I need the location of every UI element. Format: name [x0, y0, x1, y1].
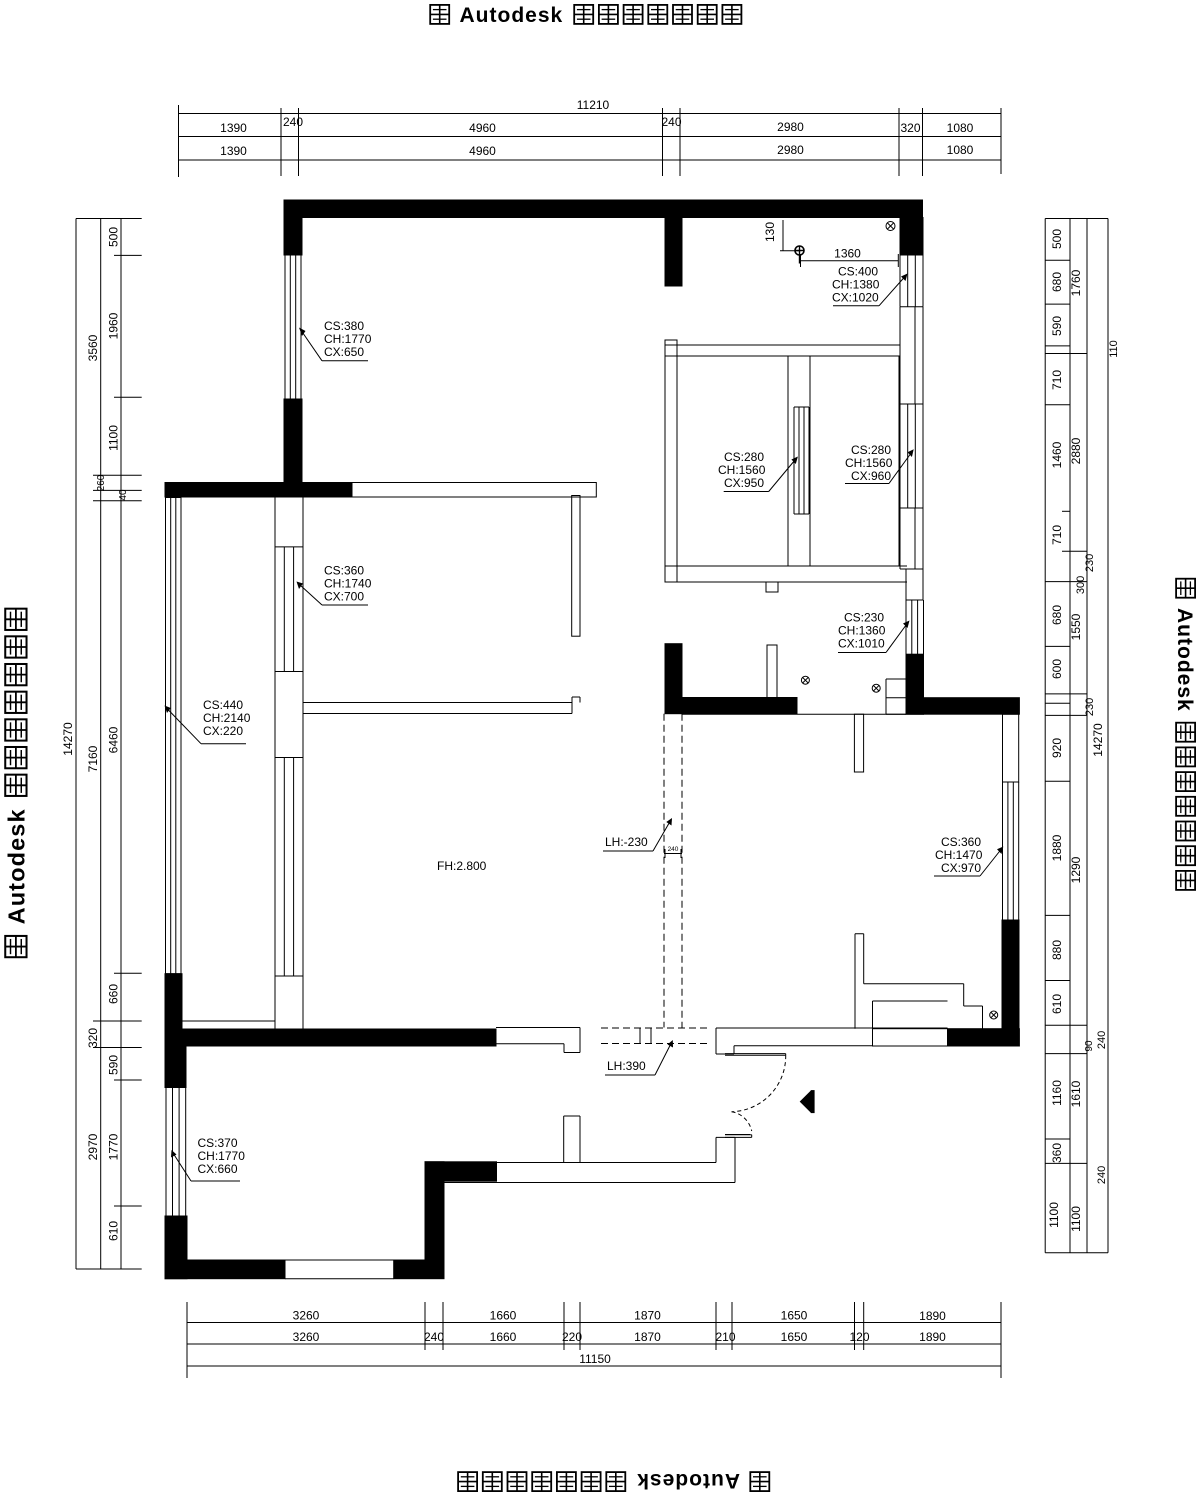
svg-text:CS:370: CS:370 — [198, 1136, 238, 1150]
svg-text:360: 360 — [1050, 1143, 1064, 1163]
svg-text:CH:1770: CH:1770 — [198, 1149, 246, 1163]
svg-text:590: 590 — [1050, 316, 1064, 336]
svg-text:2980: 2980 — [777, 143, 804, 157]
svg-text:CS:360: CS:360 — [324, 564, 364, 578]
svg-text:CS:360: CS:360 — [941, 835, 981, 849]
svg-text:1360: 1360 — [834, 247, 861, 261]
svg-text:240: 240 — [661, 115, 681, 129]
svg-text:1610: 1610 — [1069, 1080, 1083, 1107]
svg-text:CS:400: CS:400 — [838, 265, 878, 279]
svg-text:CH:1560: CH:1560 — [845, 456, 893, 470]
svg-text:680: 680 — [1050, 605, 1064, 625]
svg-text:1890: 1890 — [919, 1309, 946, 1323]
svg-text:1880: 1880 — [1050, 834, 1064, 861]
svg-text:CH:2140: CH:2140 — [203, 711, 251, 725]
svg-text:240: 240 — [283, 115, 303, 129]
svg-text:CS:280: CS:280 — [851, 443, 891, 457]
svg-text:CS:230: CS:230 — [844, 611, 884, 625]
svg-text:6460: 6460 — [107, 726, 121, 753]
svg-text:1660: 1660 — [490, 1309, 517, 1323]
svg-text:110: 110 — [1108, 340, 1120, 358]
svg-text:1080: 1080 — [947, 143, 974, 157]
svg-text:610: 610 — [107, 1221, 121, 1241]
svg-text:220: 220 — [562, 1330, 582, 1344]
svg-text:CX:660: CX:660 — [198, 1162, 238, 1176]
svg-text:1100: 1100 — [1047, 1202, 1061, 1228]
svg-text:1650: 1650 — [781, 1309, 808, 1323]
svg-text:3560: 3560 — [86, 334, 100, 361]
svg-text:14270: 14270 — [61, 722, 75, 756]
svg-text:320: 320 — [86, 1028, 100, 1048]
svg-text:1870: 1870 — [634, 1309, 661, 1323]
svg-text:130: 130 — [763, 222, 777, 242]
svg-text:LH:390: LH:390 — [607, 1059, 646, 1073]
svg-text:710: 710 — [1050, 370, 1064, 390]
svg-text:1080: 1080 — [947, 121, 974, 135]
svg-text:CH:1740: CH:1740 — [324, 577, 372, 591]
svg-text:FH:2.800: FH:2.800 — [437, 859, 487, 873]
svg-text:1390: 1390 — [220, 144, 247, 158]
svg-text:4960: 4960 — [469, 144, 496, 158]
svg-text:CS:380: CS:380 — [324, 319, 364, 333]
svg-text:CX:650: CX:650 — [324, 345, 364, 359]
svg-text:11210: 11210 — [577, 98, 610, 112]
svg-text:1550: 1550 — [1069, 613, 1083, 640]
svg-text:230: 230 — [1084, 698, 1096, 716]
svg-text:4960: 4960 — [469, 121, 496, 135]
svg-text:660: 660 — [107, 984, 121, 1004]
svg-text:11150: 11150 — [579, 1352, 611, 1366]
svg-text:CX:1020: CX:1020 — [832, 291, 879, 305]
svg-text:40: 40 — [118, 489, 129, 501]
svg-text:CH:1560: CH:1560 — [718, 463, 766, 477]
svg-text:CH:1360: CH:1360 — [838, 624, 886, 638]
svg-text:CX:950: CX:950 — [724, 476, 764, 490]
svg-text:CX:960: CX:960 — [851, 469, 891, 483]
svg-text:710: 710 — [1050, 525, 1064, 545]
svg-text:LH:-230: LH:-230 — [605, 835, 648, 849]
svg-text:610: 610 — [1050, 994, 1064, 1014]
svg-text:1650: 1650 — [781, 1330, 808, 1344]
svg-text:1160: 1160 — [1050, 1080, 1064, 1106]
svg-text:2980: 2980 — [777, 120, 804, 134]
svg-text:3260: 3260 — [293, 1309, 320, 1323]
svg-text:600: 600 — [1050, 659, 1064, 679]
svg-text:1460: 1460 — [1050, 441, 1064, 468]
svg-text:240: 240 — [424, 1330, 444, 1344]
svg-text:210: 210 — [715, 1330, 735, 1344]
svg-text:1100: 1100 — [1069, 1206, 1083, 1232]
svg-text:CX:700: CX:700 — [324, 590, 364, 604]
svg-text:2880: 2880 — [1069, 437, 1083, 464]
svg-text:300: 300 — [1075, 576, 1087, 594]
svg-text:320: 320 — [900, 121, 920, 135]
svg-text:7160: 7160 — [86, 745, 100, 772]
svg-text:240: 240 — [1096, 1031, 1108, 1049]
svg-text:3260: 3260 — [293, 1330, 320, 1344]
svg-text:1760: 1760 — [1069, 269, 1083, 296]
svg-text:1100: 1100 — [107, 425, 121, 451]
svg-text:1290: 1290 — [1069, 856, 1083, 883]
svg-text:2970: 2970 — [86, 1133, 100, 1160]
svg-text:CX:970: CX:970 — [941, 861, 981, 875]
svg-text:590: 590 — [107, 1055, 121, 1075]
svg-text:CS:440: CS:440 — [203, 698, 243, 712]
svg-text:680: 680 — [1050, 272, 1064, 292]
svg-text:CX:220: CX:220 — [203, 724, 243, 738]
svg-text:CX:1010: CX:1010 — [838, 637, 885, 651]
svg-text:14270: 14270 — [1091, 723, 1105, 757]
svg-text:CS:280: CS:280 — [724, 450, 764, 464]
svg-text:880: 880 — [1050, 940, 1064, 960]
svg-text:90: 90 — [1084, 1040, 1095, 1052]
svg-text:CH:1770: CH:1770 — [324, 332, 372, 346]
svg-text:CH:1470: CH:1470 — [935, 848, 983, 862]
svg-text:1770: 1770 — [107, 1133, 121, 1160]
svg-text:1660: 1660 — [490, 1330, 517, 1344]
svg-text:240: 240 — [668, 846, 679, 853]
svg-text:260: 260 — [96, 474, 107, 491]
svg-text:120: 120 — [849, 1330, 869, 1344]
svg-text:1960: 1960 — [107, 312, 121, 339]
svg-text:920: 920 — [1050, 738, 1064, 758]
svg-text:1390: 1390 — [220, 121, 247, 135]
svg-text:240: 240 — [1096, 1166, 1108, 1184]
svg-text:500: 500 — [1050, 229, 1064, 249]
svg-text:230: 230 — [1084, 554, 1096, 572]
svg-text:CH:1380: CH:1380 — [832, 278, 880, 292]
svg-text:500: 500 — [107, 227, 121, 247]
svg-text:1890: 1890 — [919, 1330, 946, 1344]
svg-text:1870: 1870 — [634, 1330, 661, 1344]
